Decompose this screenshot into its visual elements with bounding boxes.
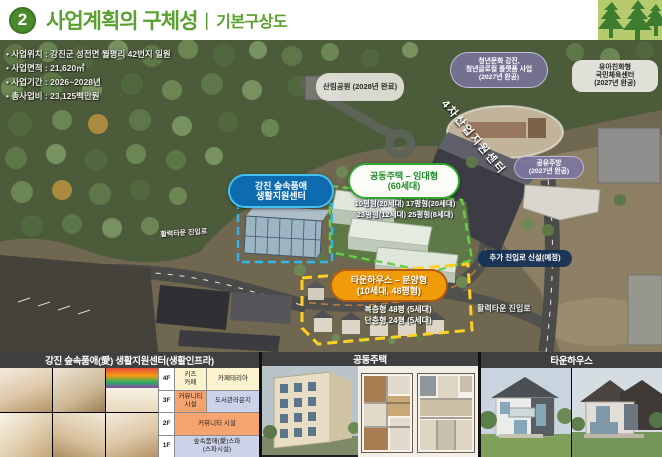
townhouse-units-line2: 단층형 24평 (5세대) [346,315,450,326]
section-living-center: 강진 숲속품애(愛) 생활지원센터(생활인프라) 4F 키즈 카페 카페테리아 [0,352,259,457]
floor-row-2f: 2F 커뮤니티 시설 [159,413,259,436]
road-label-right: 활력타운 진입로 [477,304,563,313]
label-youth-platform: 청년문화 강진, 청년글로컬 플랫폼 사업 (2027년 완공) [450,52,548,88]
apartment-facade-image [262,366,358,455]
slide-header: 2 사업계획의 구체성 | 기본구상도 [0,0,662,40]
townhouse-image-a [481,368,571,457]
section-townhouse-title: 타운하우스 [481,352,662,368]
bottom-strip: 강진 숲속품애(愛) 생활지원센터(생활인프라) 4F 키즈 카페 카페테리아 [0,352,662,457]
living-center-building [244,206,330,258]
townhouse-photos [481,368,662,457]
section-living-center-title: 강진 숲속품애(愛) 생활지원센터(생활인프라) [0,352,259,368]
floor-row-3f: 3F 커뮤니티 시설 도서관라운지 [159,391,259,414]
floorplan-image-a [361,373,413,453]
floor-label: 2F [159,413,175,435]
pine-trees-logo-icon [598,0,662,40]
page-subtitle: 기본구상도 [216,8,287,32]
label-kids-sports-center: 유아친화형 국민체육센터 (2027년 완공) [572,60,658,92]
floor-label: 1F [159,436,175,457]
info-budget: • 총사업비 : 23,125백만원 [6,89,171,103]
interior-photo [0,368,52,412]
label-apartment-rental: 공동주택 – 임대형 (60세대) [348,163,460,199]
site-aerial-map: • 사업위치 : 강진군 성전면 월평리 42번지 일원 • 사업면적 : 21… [0,40,662,352]
interior-photo [53,413,105,457]
floor-label: 3F [159,391,175,413]
floorplan-panel [358,366,478,457]
floor-use: 커뮤니티 시설 [175,413,259,435]
label-townhouse-sale: 타운하우스 – 분양형 (10세대, 48평형) [330,269,448,302]
section-number-badge: 2 [9,7,36,34]
apartment-units-line2: 23평형(12세대) 25평형(8세대) [342,209,468,220]
apartment-photo [262,366,358,457]
project-info-list: • 사업위치 : 강진군 성전면 월평리 42번지 일원 • 사업면적 : 21… [6,47,171,103]
label-new-access-road: 추가 진입로 신설(예정) [478,250,572,267]
interior-photo [106,413,158,457]
section-townhouse: 타운하우스 [481,352,662,457]
slide: 2 사업계획의 구체성 | 기본구상도 [0,0,662,457]
floorplan-image-b [417,373,475,453]
info-period: • 사업기간 : 2026~2028년 [6,75,171,89]
interior-photo [53,368,105,412]
info-location: • 사업위치 : 강진군 성전면 월평리 42번지 일원 [6,47,171,61]
apartment-units-line1: 10평형(20세대) 17평형(20세대) [342,198,468,209]
label-apartment-unit-mix: 10평형(20세대) 17평형(20세대) 23평형(12세대) 25평형(8세… [342,198,468,220]
label-shared-kitchen: 공유주방 (2027년 완공) [514,156,584,179]
floor-use: 도서관라운지 [207,391,259,413]
interior-photo [0,413,52,457]
label-townhouse-unit-mix: 복층형 48평 (5세대) 단층형 24평 (5세대) [346,304,450,326]
pine-trees-icon [598,0,662,40]
floor-label: 4F [159,368,175,390]
floor-use: 커뮤니티 시설 [175,391,207,413]
floor-use: 숲속품애(愛)스파 (스파시설) [175,436,259,457]
page-title: 사업계획의 구체성 [46,5,197,35]
label-forest-park: 산림공원 (2028년 완료) [316,73,404,101]
floor-row-4f: 4F 키즈 카페 카페테리아 [159,368,259,391]
floor-program-table: 4F 키즈 카페 카페테리아 3F 커뮤니티 시설 도서관라운지 2F 커뮤니티… [158,368,259,457]
floor-use: 키즈 카페 [175,368,207,390]
section-apartment: 공동주택 [262,352,478,457]
townhouse-units-line1: 복층형 48평 (5세대) [346,304,450,315]
interior-photo [106,368,158,412]
label-living-support-center: 강진 숲속품애 생활지원센터 [228,174,334,208]
title-divider: | [204,10,209,31]
section-apartment-title: 공동주택 [262,352,478,366]
townhouse-image-b [572,368,662,457]
info-area: • 사업면적 : 21,620㎡ [6,61,171,75]
floor-row-1f: 1F 숲속품애(愛)스파 (스파시설) [159,436,259,457]
interior-photo-collage [0,368,158,457]
floor-use: 카페테리아 [207,368,259,390]
